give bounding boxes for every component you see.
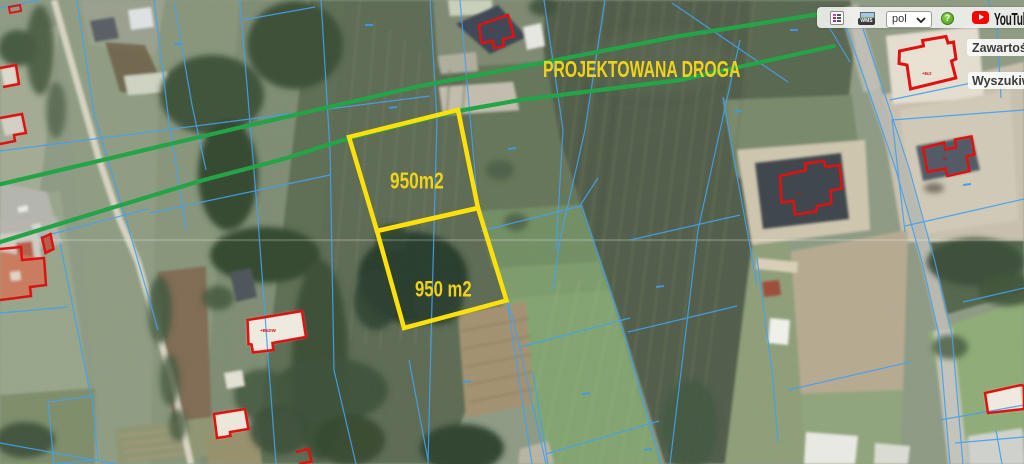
svg-text:+BsDW: +BsDW [260,328,277,333]
svg-text:PROJEKTOWANA DROGA: PROJEKTOWANA DROGA [543,57,740,83]
svg-text:+2: +2 [489,27,494,32]
svg-text:+b: +b [942,156,947,161]
svg-text:950m2: 950m2 [390,169,444,194]
svg-text:+8c2: +8c2 [922,71,932,76]
svg-text:+a: +a [796,191,802,196]
svg-text:950 m2: 950 m2 [415,277,472,302]
